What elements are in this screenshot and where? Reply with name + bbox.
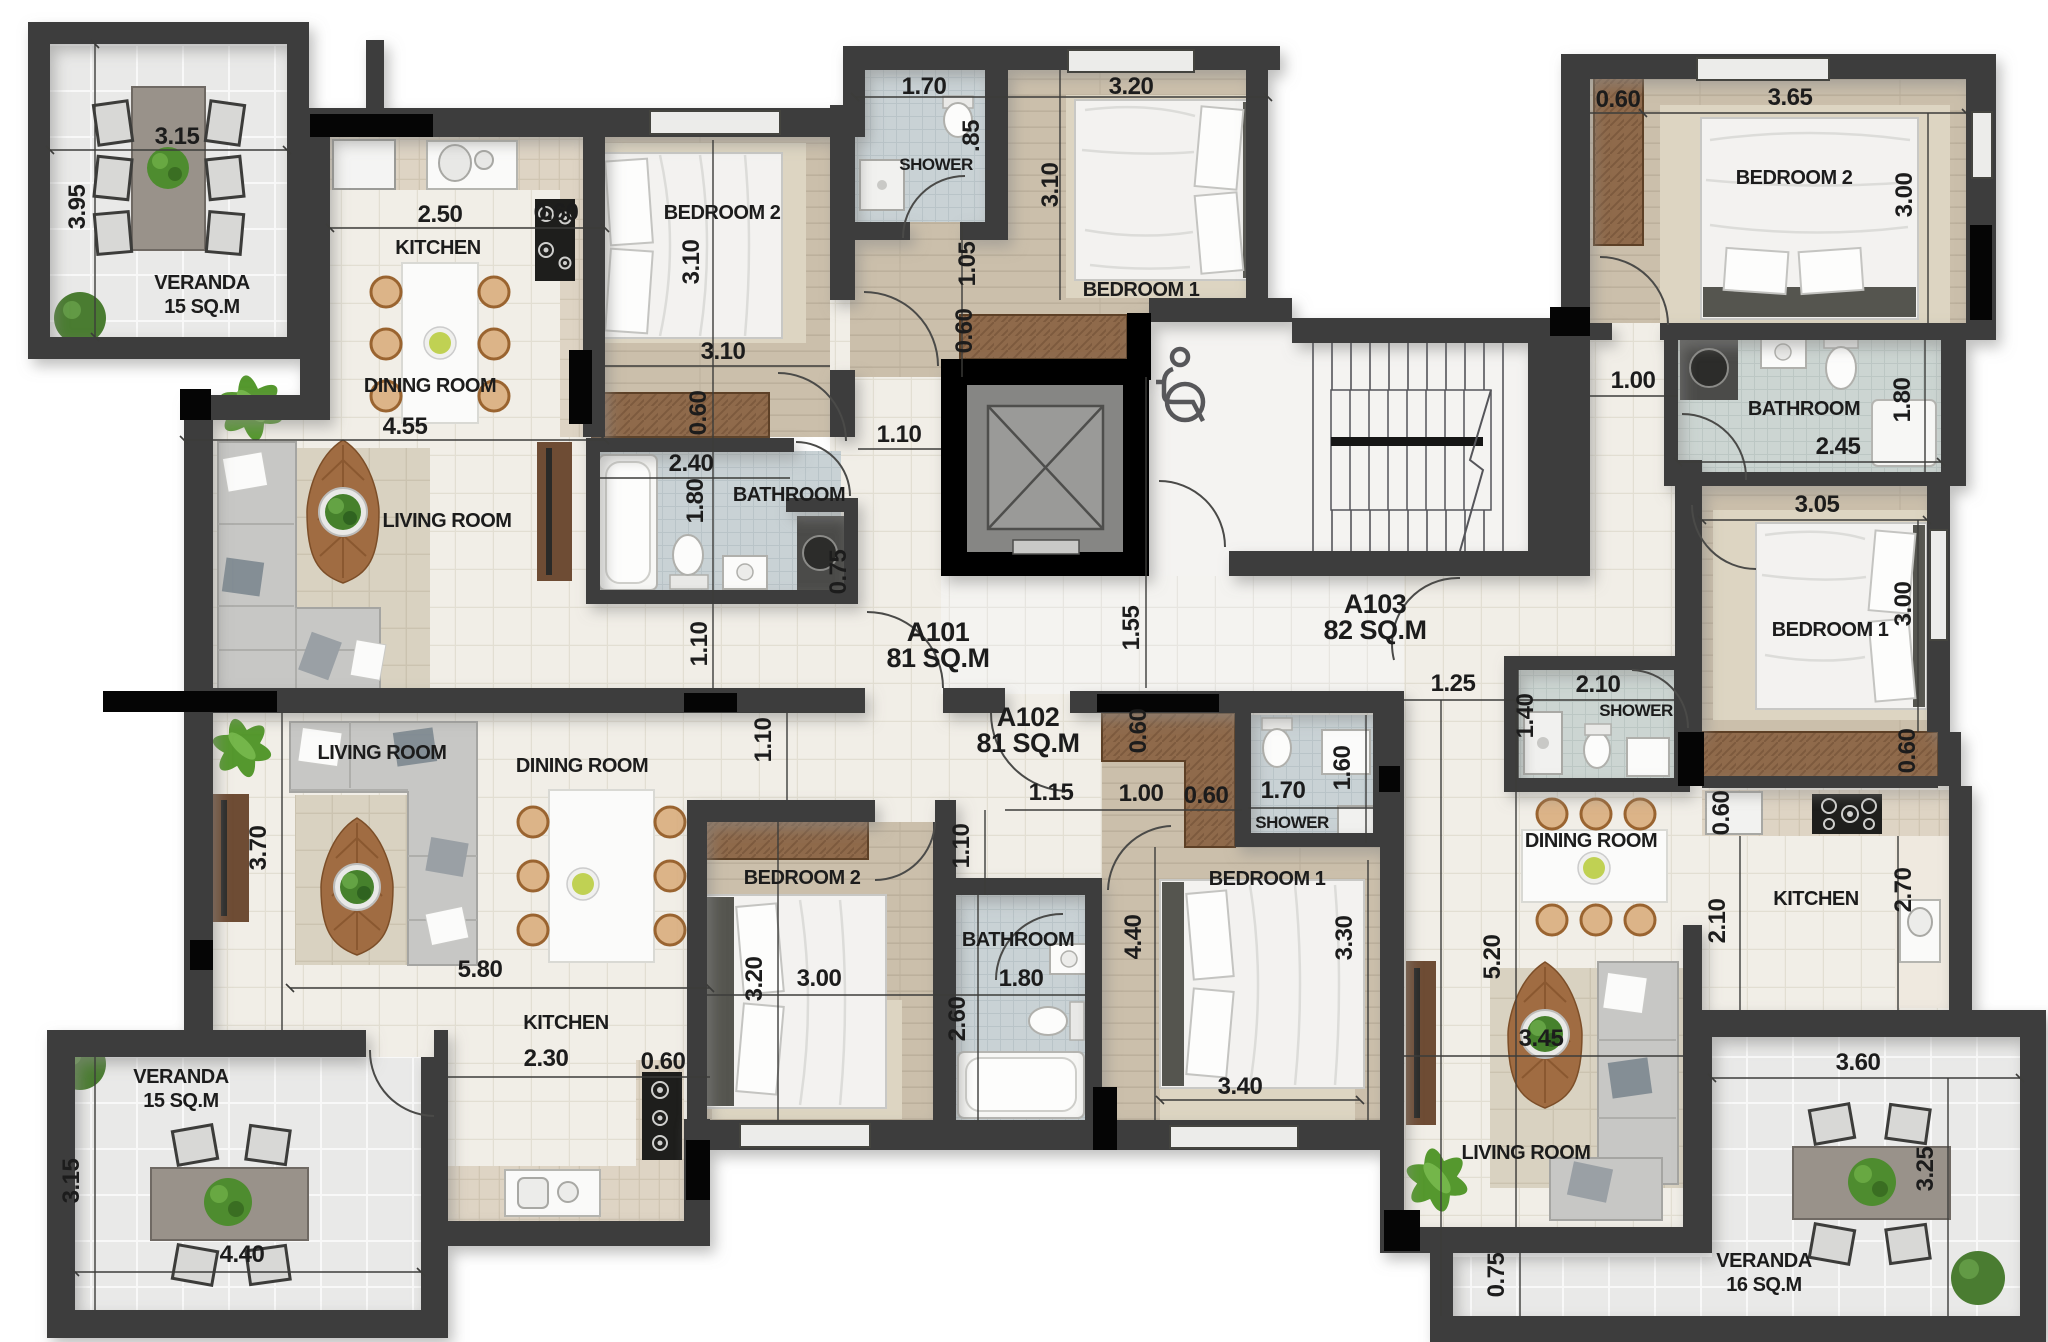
svg-text:15 SQ.M: 15 SQ.M: [143, 1090, 218, 1112]
svg-text:1.80: 1.80: [999, 965, 1044, 992]
svg-text:3.65: 3.65: [1768, 84, 1813, 111]
svg-text:BATHROOM: BATHROOM: [1748, 398, 1860, 420]
svg-text:VERANDA: VERANDA: [154, 272, 249, 294]
svg-text:1.80: 1.80: [1889, 377, 1916, 422]
svg-text:1.10: 1.10: [877, 421, 922, 448]
svg-text:1.80: 1.80: [682, 478, 709, 523]
svg-text:0.60: 0.60: [641, 1048, 686, 1075]
svg-text:0.60: 0.60: [1184, 782, 1229, 809]
svg-text:2.45: 2.45: [1816, 433, 1861, 460]
svg-text:1.10: 1.10: [750, 717, 777, 762]
svg-text:LIVING ROOM: LIVING ROOM: [318, 742, 447, 764]
svg-text:4.55: 4.55: [383, 413, 428, 440]
svg-text:5.80: 5.80: [458, 956, 503, 983]
svg-text:BEDROOM 2: BEDROOM 2: [664, 202, 781, 224]
svg-text:0.60: 0.60: [534, 199, 579, 226]
svg-text:KITCHEN: KITCHEN: [1773, 888, 1858, 910]
svg-text:LIVING ROOM: LIVING ROOM: [383, 510, 512, 532]
svg-text:81 SQ.M: 81 SQ.M: [886, 643, 989, 673]
svg-text:KITCHEN: KITCHEN: [395, 237, 480, 259]
svg-text:1.00: 1.00: [1611, 367, 1656, 394]
svg-text:.85: .85: [958, 120, 985, 152]
svg-text:SHOWER: SHOWER: [1255, 813, 1329, 832]
svg-text:1.70: 1.70: [902, 73, 947, 100]
svg-text:0.75: 0.75: [1483, 1252, 1510, 1297]
svg-text:15 SQ.M: 15 SQ.M: [164, 296, 239, 318]
svg-text:3.25: 3.25: [1912, 1146, 1939, 1191]
svg-text:BATHROOM: BATHROOM: [962, 929, 1074, 951]
svg-text:2.40: 2.40: [669, 450, 714, 477]
svg-text:3.60: 3.60: [1836, 1049, 1881, 1076]
svg-text:3.70: 3.70: [245, 825, 272, 870]
svg-text:2.30: 2.30: [524, 1045, 569, 1072]
svg-text:3.95: 3.95: [64, 184, 91, 229]
svg-text:3.40: 3.40: [1218, 1073, 1263, 1100]
svg-text:0.60: 0.60: [1125, 708, 1152, 753]
svg-text:4.40: 4.40: [220, 1241, 265, 1268]
svg-text:DINING ROOM: DINING ROOM: [1525, 830, 1657, 852]
svg-text:0.60: 0.60: [1596, 86, 1641, 113]
svg-text:1.00: 1.00: [1119, 780, 1164, 807]
svg-text:3.05: 3.05: [1795, 491, 1840, 518]
svg-text:SHOWER: SHOWER: [1599, 701, 1673, 720]
svg-text:0.75: 0.75: [825, 549, 852, 594]
svg-text:0.60: 0.60: [685, 390, 712, 435]
svg-text:1.70: 1.70: [1261, 777, 1306, 804]
svg-text:2.10: 2.10: [1704, 898, 1731, 943]
svg-text:0.60: 0.60: [951, 308, 978, 353]
svg-text:3.00: 3.00: [1890, 581, 1917, 626]
svg-text:5.20: 5.20: [1479, 934, 1506, 979]
svg-text:2.10: 2.10: [1576, 671, 1621, 698]
svg-text:3.00: 3.00: [1891, 172, 1918, 217]
svg-text:BEDROOM 1: BEDROOM 1: [1772, 619, 1889, 641]
svg-text:BEDROOM 2: BEDROOM 2: [744, 867, 861, 889]
svg-text:1.60: 1.60: [1329, 745, 1356, 790]
svg-text:VERANDA: VERANDA: [1716, 1250, 1811, 1272]
svg-text:0.60: 0.60: [1894, 728, 1921, 773]
svg-text:82 SQ.M: 82 SQ.M: [1323, 615, 1426, 645]
svg-text:2.50: 2.50: [418, 201, 463, 228]
svg-text:2.60: 2.60: [944, 996, 971, 1041]
svg-text:1.10: 1.10: [686, 621, 713, 666]
svg-text:1.55: 1.55: [1118, 605, 1145, 650]
svg-text:1.10: 1.10: [948, 823, 975, 868]
svg-text:DINING ROOM: DINING ROOM: [516, 755, 648, 777]
svg-text:LIVING ROOM: LIVING ROOM: [1462, 1142, 1591, 1164]
svg-text:1.15: 1.15: [1029, 779, 1074, 806]
svg-text:3.10: 3.10: [1037, 162, 1064, 207]
svg-text:0.60: 0.60: [1708, 790, 1735, 835]
svg-text:3.15: 3.15: [58, 1158, 85, 1203]
svg-text:BEDROOM 2: BEDROOM 2: [1736, 167, 1853, 189]
svg-text:81 SQ.M: 81 SQ.M: [976, 728, 1079, 758]
svg-text:3.10: 3.10: [678, 239, 705, 284]
svg-text:3.30: 3.30: [1331, 915, 1358, 960]
svg-text:VERANDA: VERANDA: [133, 1066, 228, 1088]
svg-text:3.20: 3.20: [741, 956, 768, 1001]
svg-text:4.40: 4.40: [1120, 914, 1147, 959]
svg-text:3.15: 3.15: [155, 123, 200, 150]
svg-text:3.45: 3.45: [1519, 1025, 1564, 1052]
svg-text:3.00: 3.00: [797, 965, 842, 992]
svg-text:KITCHEN: KITCHEN: [523, 1012, 608, 1034]
svg-text:BATHROOM: BATHROOM: [733, 484, 845, 506]
svg-text:16 SQ.M: 16 SQ.M: [1726, 1274, 1801, 1296]
svg-text:3.10: 3.10: [701, 338, 746, 365]
svg-text:3.20: 3.20: [1109, 73, 1154, 100]
svg-text:1.05: 1.05: [954, 241, 981, 286]
svg-text:2.70: 2.70: [1890, 867, 1917, 912]
svg-text:SHOWER: SHOWER: [899, 155, 973, 174]
svg-text:1.40: 1.40: [1512, 693, 1539, 738]
svg-text:BEDROOM 1: BEDROOM 1: [1083, 279, 1200, 301]
svg-text:DINING ROOM: DINING ROOM: [364, 375, 496, 397]
svg-text:1.25: 1.25: [1431, 670, 1476, 697]
svg-text:BEDROOM 1: BEDROOM 1: [1209, 868, 1326, 890]
